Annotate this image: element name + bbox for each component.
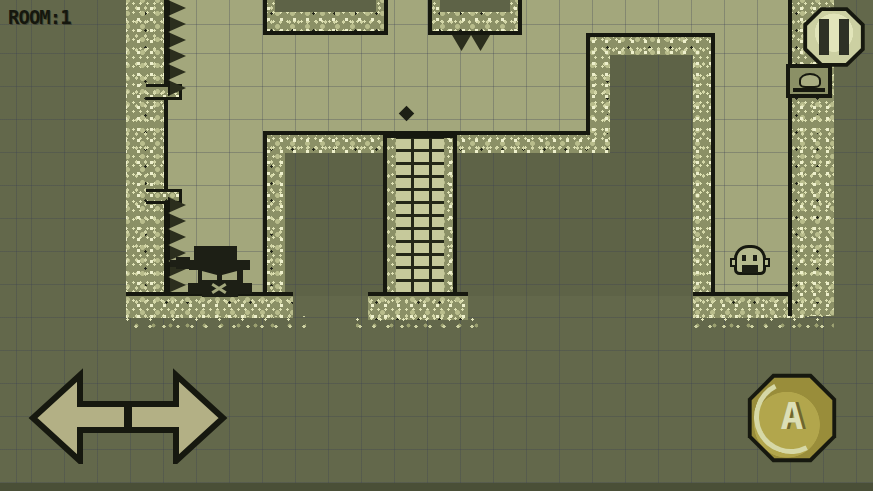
floor-under-pillar (368, 292, 468, 320)
player-character (168, 236, 254, 298)
player-arm-left (188, 283, 202, 294)
wall-core (285, 153, 693, 296)
ceiling-platform (428, 0, 522, 35)
bottom-strip (0, 483, 873, 491)
slime-eye (742, 255, 746, 261)
pause-button-face (806, 10, 862, 64)
wall-core (610, 55, 693, 153)
central-wall-mass (263, 33, 715, 296)
creature-sign (786, 64, 832, 98)
wall-edge (586, 33, 590, 135)
slime-mouth (742, 265, 758, 273)
wall-edge (263, 131, 267, 292)
a-button-label: A (746, 394, 838, 438)
player-hat-crown (194, 246, 237, 261)
wall-edge (586, 33, 715, 37)
room-label: ROOM:1 (8, 6, 71, 28)
right-arrow-button[interactable] (126, 368, 228, 464)
player-arm-right (238, 283, 252, 294)
ceiling-platform (263, 0, 388, 35)
left-arrow-icon (33, 375, 127, 461)
slime-eye (753, 255, 757, 261)
rubble-fade (356, 318, 478, 334)
player-cape (170, 260, 178, 267)
player-cape (176, 257, 190, 269)
slime-nub-right (763, 258, 770, 267)
slime-enemy (730, 245, 770, 280)
platform-core (440, 0, 510, 12)
platform-core (275, 0, 376, 12)
game-screen: ROOM:1 A (0, 0, 873, 491)
slime-nub-left (730, 258, 737, 267)
sign-base (793, 88, 825, 92)
a-button[interactable]: A (746, 372, 838, 464)
left-arrow-button[interactable] (28, 368, 130, 464)
pause-icon (839, 19, 849, 55)
left-wall (126, 0, 168, 316)
wall-edge (711, 33, 715, 292)
sign-creature-icon (799, 73, 821, 88)
right-arrow-icon (129, 375, 223, 461)
play-area-top-corridor (590, 0, 795, 33)
pause-icon (819, 19, 829, 55)
brick-pillar (383, 131, 457, 292)
rubble-fade (126, 316, 306, 332)
brick-texture (396, 138, 444, 292)
